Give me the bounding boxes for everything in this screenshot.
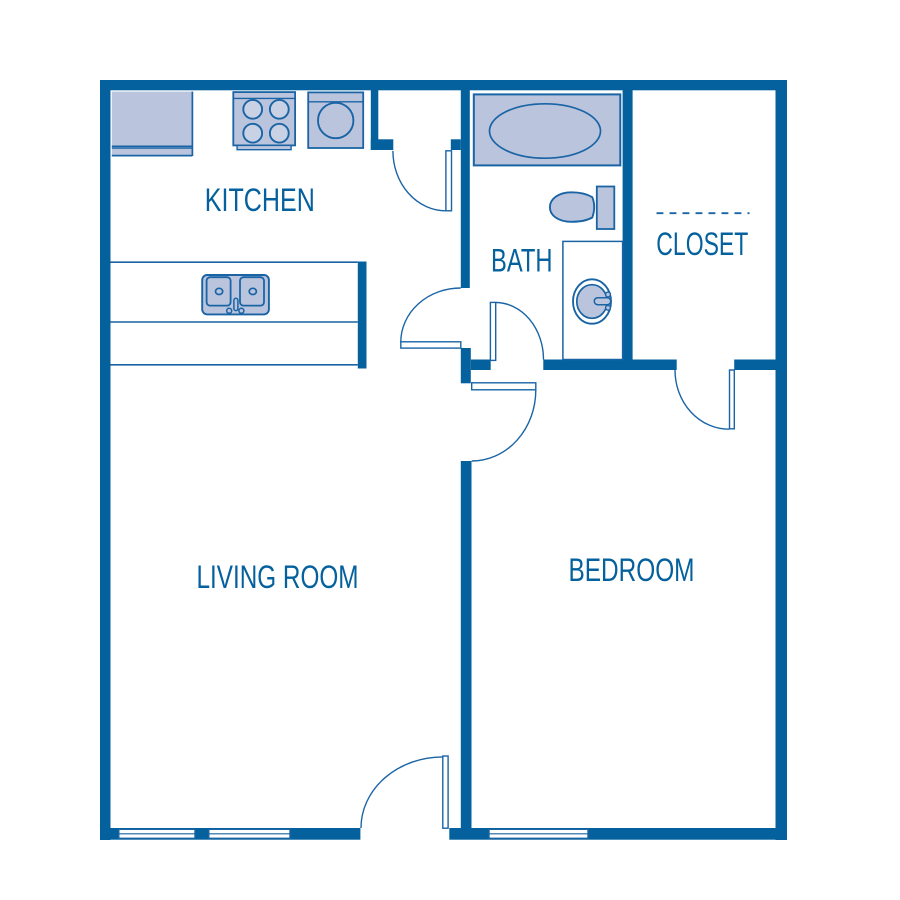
svg-text:KITCHEN: KITCHEN [205,182,315,218]
svg-text:BATH: BATH [491,243,553,279]
svg-text:CLOSET: CLOSET [656,226,748,262]
svg-text:LIVING ROOM: LIVING ROOM [197,559,359,595]
svg-text:BEDROOM: BEDROOM [569,552,695,588]
